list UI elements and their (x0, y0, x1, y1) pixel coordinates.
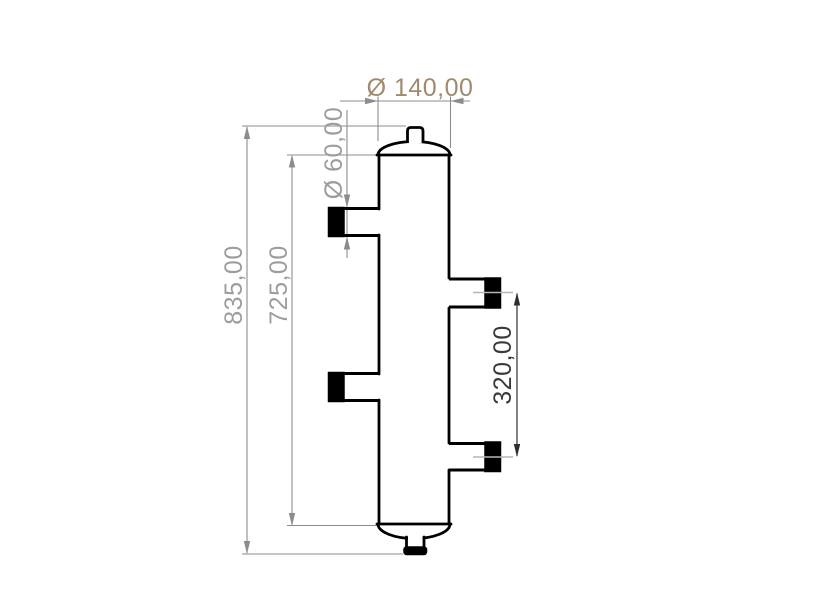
arrow-down-icon (244, 541, 250, 554)
arrow-down-icon (289, 513, 295, 526)
drawing-canvas: 835,00 725,00 Ø 60,00 Ø 140,00 320,00 (0, 0, 827, 615)
technical-drawing: 835,00 725,00 Ø 60,00 Ø 140,00 320,00 (0, 0, 827, 615)
arrow-up-icon (514, 293, 520, 306)
vessel-outline (329, 128, 501, 555)
bottom-nozzle-mask (408, 535, 423, 547)
arrow-down-icon (514, 444, 520, 457)
dimension-body-diameter (340, 97, 470, 149)
top-nozzle (408, 128, 424, 144)
port-fitting-upper-left (329, 208, 345, 237)
arrow-up-icon (344, 237, 350, 250)
dimension-shell-length-label[interactable]: 725,00 (265, 245, 293, 324)
port-fitting-lower-left (329, 373, 345, 402)
dimension-port-diameter-label[interactable]: Ø 60,00 (320, 107, 348, 199)
arrow-up-icon (244, 126, 250, 139)
dimension-total-height-label[interactable]: 835,00 (220, 245, 248, 324)
bottom-nozzle-cap (404, 547, 427, 555)
arrow-up-icon (289, 155, 295, 168)
dimension-port-spacing-label[interactable]: 320,00 (489, 325, 517, 404)
dimension-body-diameter-label[interactable]: Ø 140,00 (367, 74, 474, 102)
top-dome-edge (378, 142, 450, 156)
